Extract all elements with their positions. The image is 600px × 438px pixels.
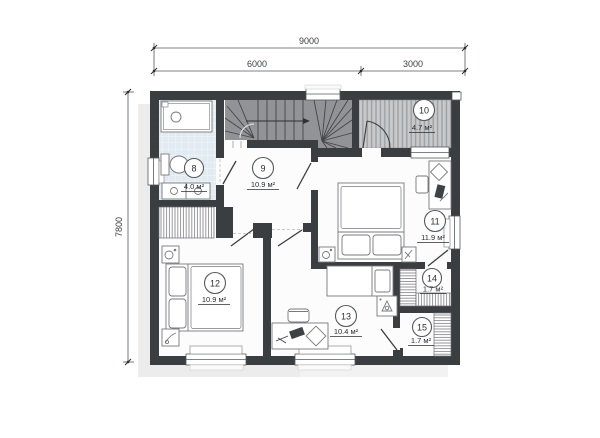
desk-icon: [429, 161, 451, 209]
nightstand-lamp-icon: [162, 246, 179, 263]
room-10-area: 4.7 м²: [412, 123, 433, 132]
room-9-number: 9: [260, 164, 265, 174]
room-8-number: 8: [191, 164, 196, 174]
dim-side-height: 7800: [114, 217, 124, 237]
room-13-area: 10.4 м²: [334, 327, 359, 336]
desk-icon-2: [272, 323, 328, 349]
closet14-hatch-bottom: [416, 293, 451, 306]
chair-icon: [288, 309, 309, 322]
single-bed-icon: [327, 266, 393, 296]
closet14-hatch-left: [400, 269, 416, 306]
wardrobe-hatch: [159, 207, 214, 238]
floor-plan-drawing: 8 4.0 м² 9 10.9 м² 10 4.7 м² 11 11.9 м² …: [0, 0, 600, 438]
desk-chair-icon: [416, 176, 429, 193]
room-13-number: 13: [341, 312, 351, 322]
dim-total-width: 9000: [299, 36, 319, 46]
dim-left-width: 6000: [247, 59, 267, 69]
balcony-floor: [359, 100, 451, 148]
room-11-area: 11.9 м²: [421, 233, 445, 242]
room-11-number: 11: [430, 217, 439, 227]
shower-icon: [161, 101, 212, 132]
room-12-number: 12: [210, 279, 220, 289]
room-8-area: 4.0 м²: [184, 182, 205, 191]
closet15-hatch-right: [434, 313, 451, 356]
water-heater-icon: [377, 296, 397, 316]
room-15-number: 15: [417, 323, 427, 333]
room-9-area: 10.9 м²: [251, 180, 276, 189]
dim-right-width: 3000: [403, 59, 423, 69]
floor-plan-page: 8 4.0 м² 9 10.9 м² 10 4.7 м² 11 11.9 м² …: [0, 0, 600, 438]
room-15-area: 1.7 м²: [411, 336, 432, 345]
lamp-icon-2: [319, 247, 335, 262]
slippers-icon: [162, 329, 179, 346]
toilet-icon: [161, 154, 188, 175]
room-12-area: 10.9 м²: [202, 295, 227, 304]
room-10-number: 10: [419, 106, 429, 116]
accessory-icon: [402, 247, 416, 262]
room-14-number: 14: [427, 274, 437, 284]
room-14-area: 1.7 м²: [423, 285, 444, 294]
window-corner: [452, 92, 461, 100]
double-bed-icon-2: [338, 183, 404, 259]
